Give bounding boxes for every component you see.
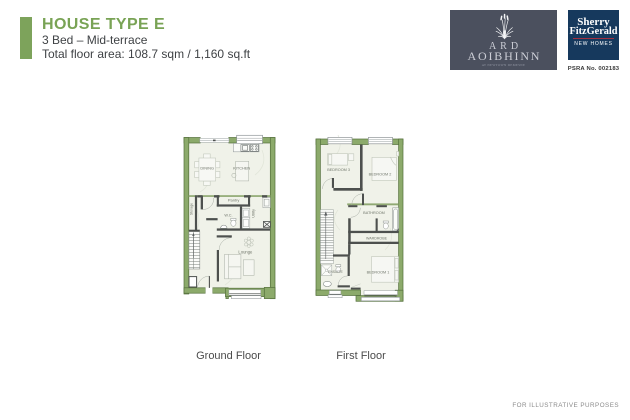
- svg-text:WARDROBE: WARDROBE: [366, 237, 388, 241]
- svg-text:ENSUITE: ENSUITE: [328, 270, 343, 274]
- svg-text:Storage: Storage: [190, 203, 194, 215]
- svg-text:BATHROOM: BATHROOM: [363, 211, 385, 215]
- svg-text:BEDROOM 3: BEDROOM 3: [327, 168, 350, 172]
- svg-text:Pantry: Pantry: [228, 198, 240, 203]
- svg-text:KITCHEN: KITCHEN: [233, 165, 250, 170]
- svg-text:Utility: Utility: [251, 209, 255, 218]
- svg-text:DINING: DINING: [200, 166, 214, 171]
- svg-text:Lounge: Lounge: [238, 249, 253, 254]
- svg-text:BEDROOM 1: BEDROOM 1: [367, 270, 390, 274]
- svg-text:BEDROOM 2: BEDROOM 2: [369, 172, 392, 176]
- svg-text:W.C.: W.C.: [224, 213, 232, 217]
